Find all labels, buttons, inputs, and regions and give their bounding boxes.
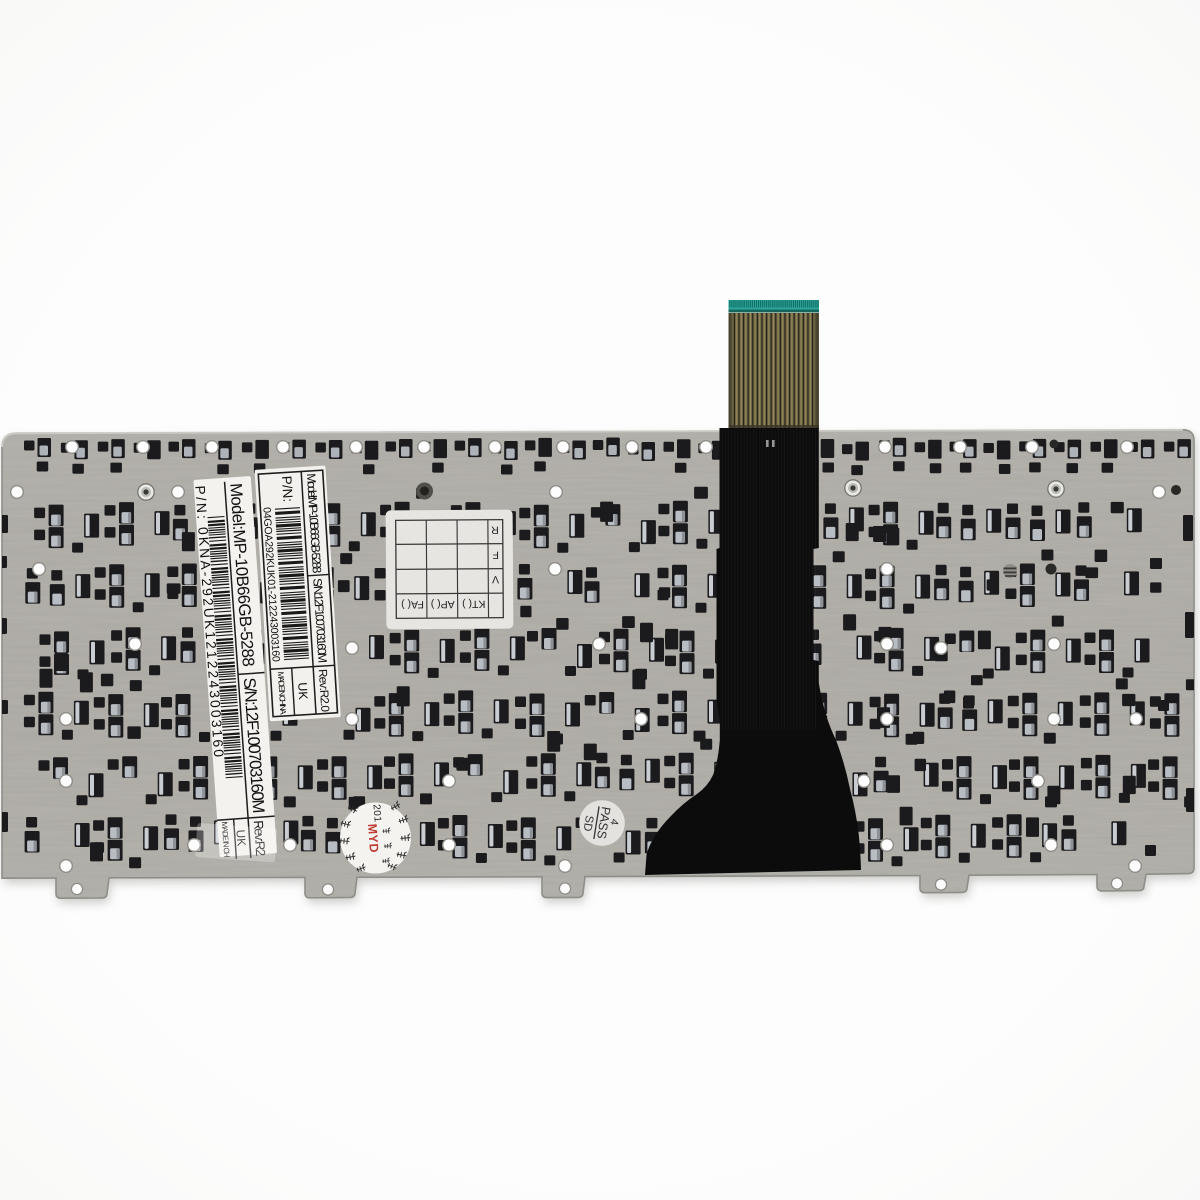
svg-text:Rev:R2.0: Rev:R2.0 <box>316 669 333 713</box>
svg-text:SD: SD <box>581 814 595 832</box>
svg-text:P/N:: P/N: <box>279 475 296 502</box>
svg-text:F: F <box>492 549 499 561</box>
svg-text:AP( ): AP( ) <box>431 598 455 610</box>
svg-text:V: V <box>492 573 499 585</box>
svg-text:KT( ): KT( ) <box>462 598 485 610</box>
svg-text:R: R <box>491 524 499 536</box>
svg-text:201: 201 <box>371 804 383 823</box>
svg-text:UK: UK <box>295 682 310 701</box>
svg-text:MYD: MYD <box>365 823 381 853</box>
svg-text:FA( ): FA( ) <box>401 598 424 610</box>
